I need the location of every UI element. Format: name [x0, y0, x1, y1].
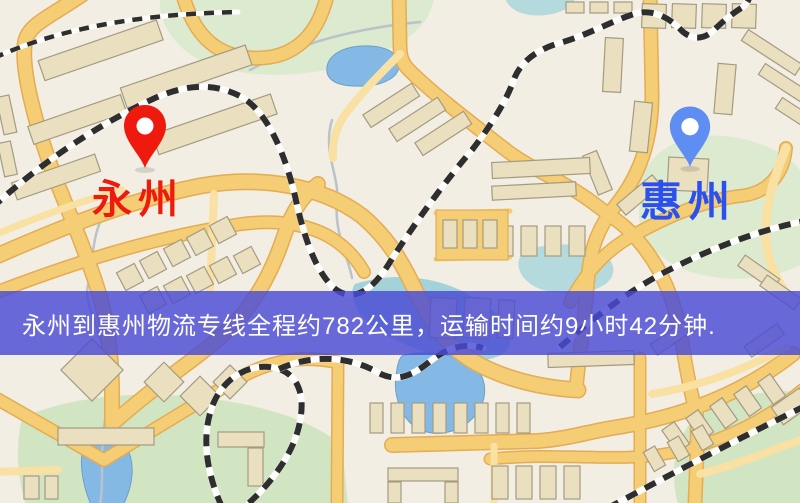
destination-city-label: 惠州	[640, 181, 736, 223]
map-canvas[interactable]	[0, 0, 800, 503]
origin-city-label: 永州	[92, 180, 184, 220]
location-pin-icon[interactable]	[124, 105, 166, 168]
route-info-text: 永州到惠州物流专线全程约782公里，运输时间约9小时42分钟.	[22, 306, 716, 341]
map-screenshot: 永州 惠州 永州到惠州物流专线全程约782公里，运输时间约9小时42分钟.	[0, 0, 800, 503]
pin-inner-dot	[137, 118, 154, 135]
origin-marker-pin[interactable]	[124, 105, 166, 173]
route-info-banner: 永州到惠州物流专线全程约782公里，运输时间约9小时42分钟.	[0, 291, 800, 355]
pin-inner-dot	[681, 118, 698, 135]
